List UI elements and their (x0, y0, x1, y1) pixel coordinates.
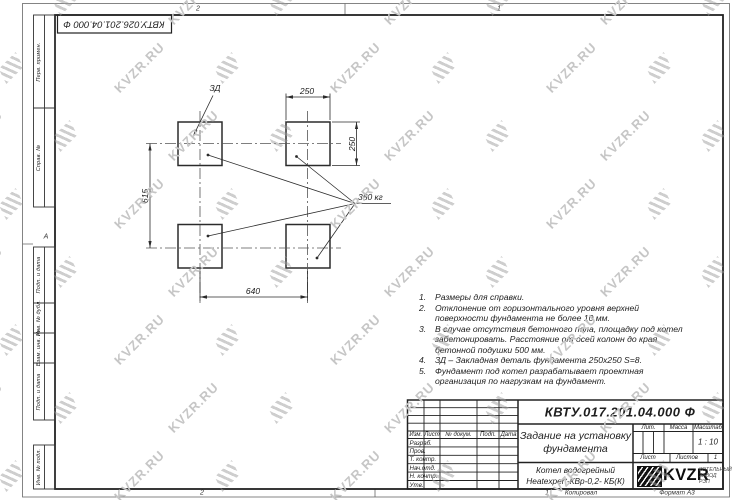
row-n-kontr: Н. контр. (410, 473, 438, 481)
note-text: Фундамент под котел разрабатывает проект… (435, 366, 687, 387)
notes-list: 1.Размеры для справки. 2.Отклонение от г… (419, 292, 719, 387)
drawing-sheet: КВТУ.026.201.04.000 Ф Перв. примен. Спра… (0, 0, 750, 500)
margin-label-perv-primen: Перв. примен. (36, 42, 42, 81)
dim-bottom-640: 640 (246, 286, 260, 296)
margin-label-podp-data-2: Подп. и дата (36, 373, 42, 410)
label-massa: Масса (670, 425, 688, 431)
sheet-outer-border (23, 4, 730, 498)
zone-top-1: 1 (497, 5, 501, 12)
row-utv: Утв. (410, 482, 424, 490)
note-2: 2.Отклонение от горизонтального уровня в… (419, 303, 719, 324)
note-number: 1. (419, 292, 435, 303)
note-3: 3.В случае отсутствия бетонного пола, пл… (419, 324, 719, 356)
title-block-product-name: Котел водогрейный Heatexpert-КВр-0,2- КБ… (519, 463, 632, 488)
zone-bottom-2: 2 (200, 490, 204, 497)
scale-value: 1 : 10 (698, 438, 718, 447)
row-t-kontr: Т. контр. (410, 456, 437, 464)
note-text: Размеры для справки. (435, 292, 687, 303)
col-list: Лист (424, 432, 439, 438)
title-block-document-title: Задание на установку фундамента (518, 424, 633, 462)
zone-letter-a: А (44, 234, 49, 241)
kvzr-logo-icon (637, 466, 662, 487)
kvzr-logo-caption: КОТЕЛЬНЫЙ ЗАВОД РЭП (699, 467, 724, 486)
col-podp: Подп. (480, 432, 496, 438)
note-number: 3. (419, 324, 435, 356)
note-number: 5. (419, 366, 435, 387)
label-listov: Листов (676, 455, 698, 461)
margin-label-podp-data-1: Подп. и дата (36, 257, 42, 294)
label-masshtab: Масштаб (694, 425, 722, 431)
left-margin-cells (34, 15, 56, 489)
row-prov: Пров. (410, 448, 426, 456)
note-4: 4.ЗД – Закладная деталь фундамента 250х2… (419, 355, 719, 366)
weight-label: 350 кг (358, 192, 383, 202)
note-5: 5.Фундамент под котел разрабатывает прое… (419, 366, 719, 387)
value-listov: 1 (714, 455, 717, 461)
dim-right-250: 250 (347, 136, 357, 150)
row-razrab: Разраб. (410, 440, 432, 448)
margin-label-sprav-no: Справ. № (36, 144, 42, 171)
col-dokum: № докум. (445, 432, 471, 438)
note-text: Отклонение от горизонтального уровня вер… (435, 303, 687, 324)
note-text: ЗД – Закладная деталь фундамента 250х250… (435, 355, 687, 366)
zone-top-2: 2 (196, 5, 200, 12)
dim-top-250: 250 (300, 86, 314, 96)
footer-copied: Копировал (565, 490, 597, 497)
top-designation-label: КВТУ.026.201.04.000 Ф (63, 19, 164, 30)
note-number: 4. (419, 355, 435, 366)
note-1: 1.Размеры для справки. (419, 292, 719, 303)
margin-label-inv-podl: Инв. № подл. (36, 449, 42, 486)
col-data: Дата (501, 432, 517, 438)
footer-format: Формат А3 (659, 490, 695, 497)
note-text: В случае отсутствия бетонного пола, площ… (435, 324, 687, 356)
margin-label-vzam-inv: Взам. инв. № (36, 330, 42, 366)
label-list: Лист (640, 455, 655, 461)
col-izm: Изм. (409, 432, 422, 438)
centerlines (146, 111, 341, 303)
dimension-lines (150, 94, 391, 302)
row-nach-otd: Нач.отд. (410, 465, 436, 473)
label-lit: Лит. (641, 425, 655, 431)
drawing-linework (0, 0, 750, 500)
footer-sheet-num: 1 (545, 490, 549, 497)
note-number: 2. (419, 303, 435, 324)
dim-left-615: 615 (140, 188, 150, 202)
title-block-designation: КВТУ.017.201.04.000 Ф (545, 405, 696, 420)
embedded-part-label: ЗД (210, 83, 221, 93)
